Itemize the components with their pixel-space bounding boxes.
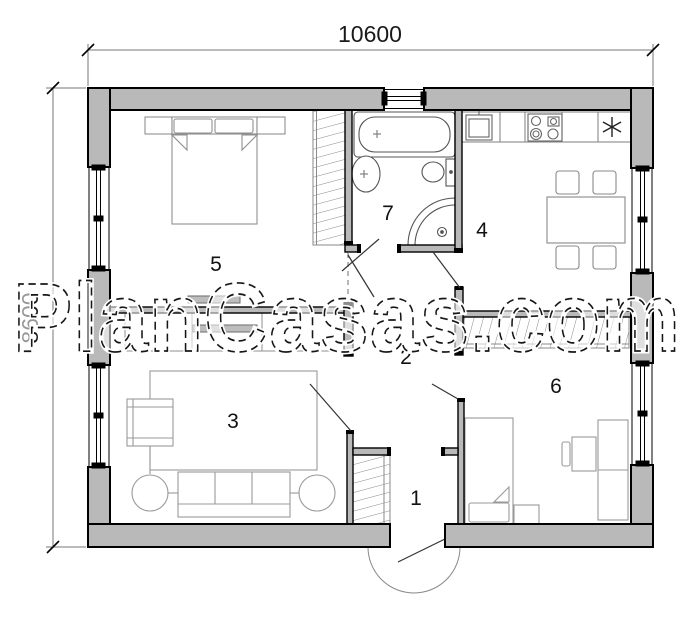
wardrobe-room5 xyxy=(313,110,345,245)
room-label-1: 1 xyxy=(410,487,422,510)
side-table-left xyxy=(132,475,168,511)
room-label-4: 4 xyxy=(476,219,488,242)
wall-bed5-bath xyxy=(345,110,352,245)
toilet-button xyxy=(450,171,453,174)
bed-shelf-right xyxy=(257,117,285,134)
entrance-door-leaf xyxy=(398,539,445,562)
bathtub-inner xyxy=(359,117,450,152)
wall-north-east-segment xyxy=(424,88,653,110)
window-west-1 xyxy=(89,165,109,271)
wall-bath-kitchen xyxy=(455,110,462,252)
pillow xyxy=(469,503,509,522)
window-north-bathroom xyxy=(382,90,426,109)
armchair xyxy=(127,399,173,446)
room-label-3: 3 xyxy=(227,410,239,433)
watermark: PlanCasas.com PlanCasas.com xyxy=(13,263,681,372)
side-table-right xyxy=(299,475,335,511)
watermark-outline: PlanCasas.com xyxy=(13,263,681,372)
sofa xyxy=(178,472,290,517)
toilet-bowl xyxy=(422,162,444,182)
window-east-bed6 xyxy=(632,361,652,466)
wall-hall-living xyxy=(347,432,353,524)
floor-plan-drawing: 10600 8600 xyxy=(0,0,695,628)
bathroom-fixtures xyxy=(352,112,456,245)
window-east-kitchen xyxy=(632,166,652,274)
door-leaf-bed6 xyxy=(432,384,458,399)
wall-south-west-segment xyxy=(88,524,390,547)
dining-table xyxy=(547,197,625,243)
dimension-top xyxy=(82,44,659,86)
wall-west-top xyxy=(88,88,110,167)
dining-chair xyxy=(556,171,579,194)
pillow-right xyxy=(215,119,253,133)
bed-shelf-left xyxy=(145,117,172,134)
jamb-closet xyxy=(353,448,390,455)
desk xyxy=(572,437,596,471)
room6-furniture xyxy=(465,418,628,524)
desk-chair xyxy=(562,442,570,466)
dimension-top-label: 10600 xyxy=(338,21,402,47)
door-leaf-living xyxy=(310,384,351,431)
window-west-2 xyxy=(89,363,109,468)
dining-chair xyxy=(593,171,616,194)
wall-hall-bed6 xyxy=(458,400,464,524)
room-label-7: 7 xyxy=(382,202,394,225)
nightstand xyxy=(514,505,539,524)
wall-north-west-segment xyxy=(88,88,384,110)
pillow-left xyxy=(174,119,212,133)
room-label-6: 6 xyxy=(550,375,562,398)
wall-south-east-segment xyxy=(445,524,653,547)
floor-plan-page: 10600 8600 xyxy=(0,0,695,628)
kitchen-furniture xyxy=(462,100,631,269)
wall-east-top xyxy=(631,88,653,168)
wall-bath-south xyxy=(398,245,462,252)
